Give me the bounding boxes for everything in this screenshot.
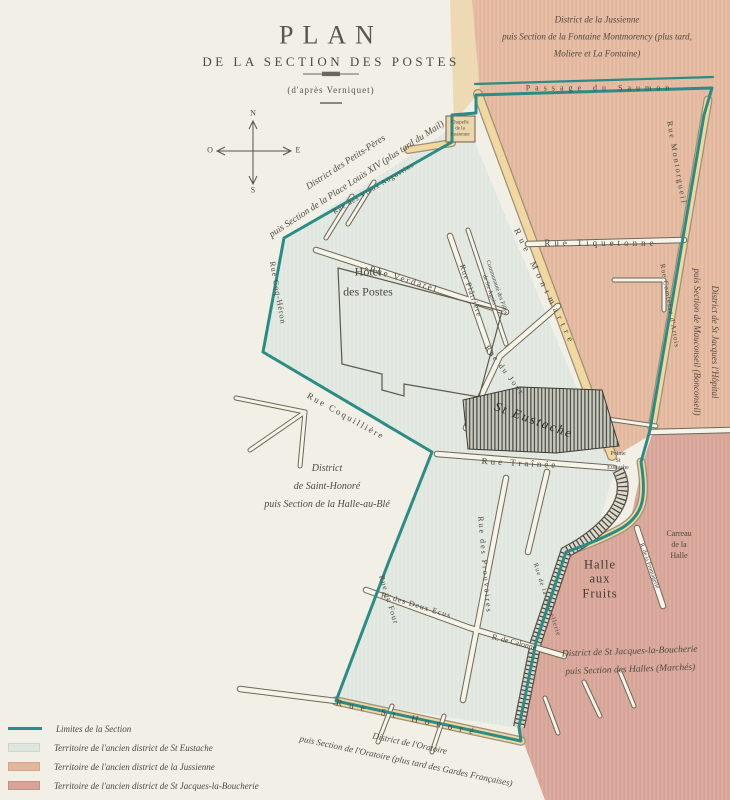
legend-label: Territoire de l'ancien district de St Eu… xyxy=(54,743,213,753)
legend-item-st-eustache: Territoire de l'ancien district de St Eu… xyxy=(8,741,259,754)
legend-item-limites: Limites de la Section xyxy=(8,722,259,735)
legend: Limites de la Section Territoire de l'an… xyxy=(8,722,259,792)
legend-item-st-jacques: Territoire de l'ancien district de St Ja… xyxy=(8,779,259,792)
compass-rose xyxy=(217,121,291,184)
legend-swatch-rose xyxy=(8,781,40,790)
title-dividers xyxy=(303,72,359,103)
legend-label: Territoire de l'ancien district de la Ju… xyxy=(54,762,215,772)
legend-item-jussienne: Territoire de l'ancien district de la Ju… xyxy=(8,760,259,773)
building-chapelle-jussienne xyxy=(446,116,475,142)
map-plan-section-des-postes: PLAN DE LA SECTION DES POSTES (d'après V… xyxy=(0,0,730,800)
map-canvas xyxy=(0,0,730,800)
legend-swatch-salmon xyxy=(8,762,40,771)
legend-label: Limites de la Section xyxy=(56,724,131,734)
legend-swatch-green xyxy=(8,743,40,752)
building-st-eustache xyxy=(463,387,619,453)
legend-swatch-boundary-line xyxy=(8,727,42,730)
legend-label: Territoire de l'ancien district de St Ja… xyxy=(54,781,259,791)
